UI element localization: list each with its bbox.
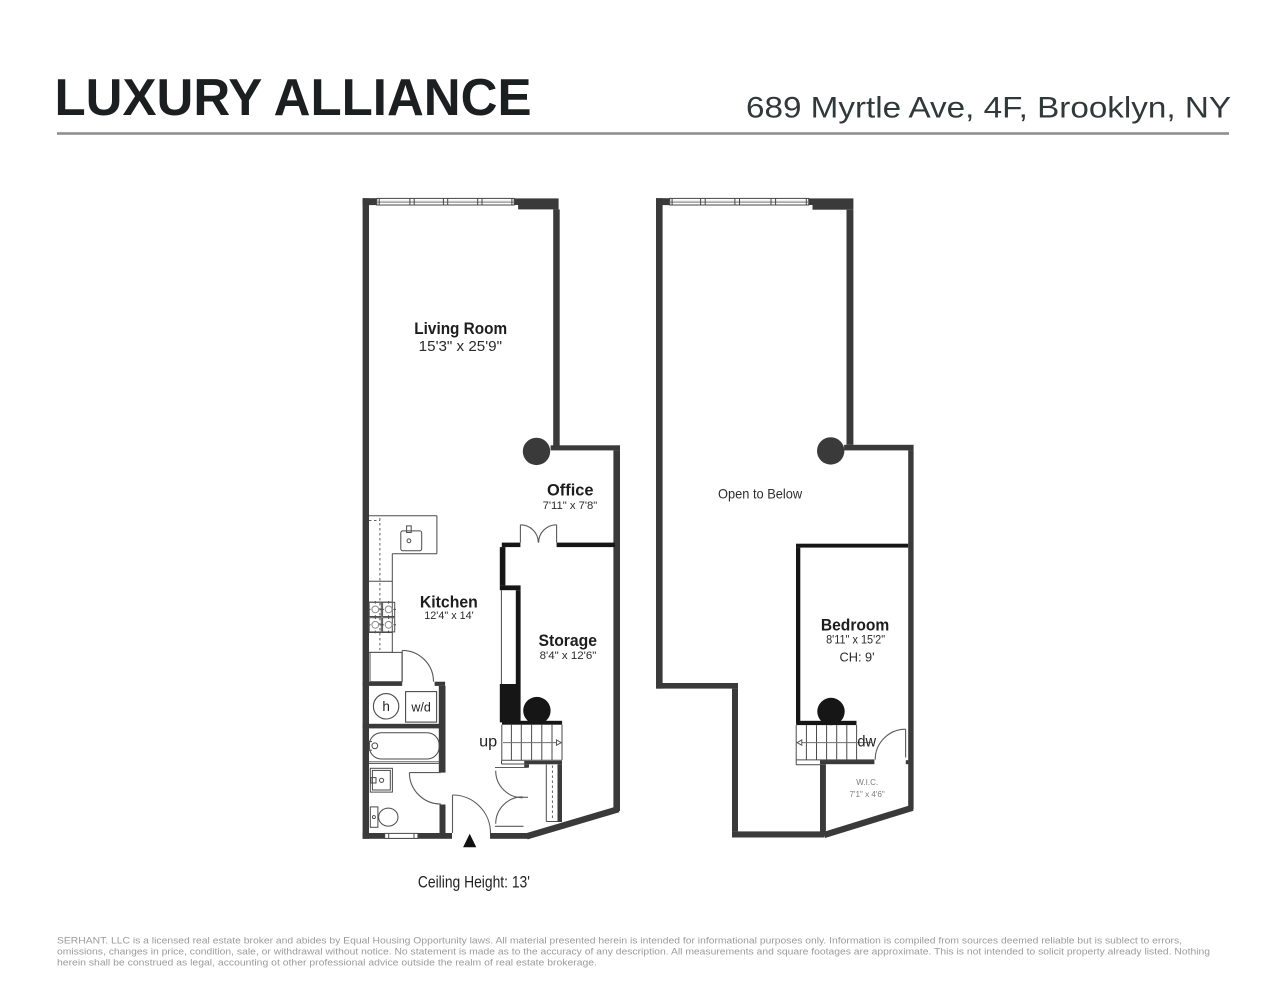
svg-text:up: up xyxy=(479,733,497,750)
svg-text:12'4" x 14': 12'4" x 14' xyxy=(424,610,473,622)
svg-text:h: h xyxy=(382,699,390,714)
svg-text:7'11" x 7'8": 7'11" x 7'8" xyxy=(543,500,598,512)
svg-text:SERHANT. LLC is a licensed rea: SERHANT. LLC is a licensed real estate b… xyxy=(57,935,1182,945)
svg-text:Open to Below: Open to Below xyxy=(718,486,803,502)
svg-text:7'1" x 4'6": 7'1" x 4'6" xyxy=(850,789,885,799)
svg-text:8'11" x 15'2": 8'11" x 15'2" xyxy=(826,633,885,647)
svg-text:herein shall be construed as l: herein shall be construed as legal, acco… xyxy=(57,957,597,967)
svg-text:Office: Office xyxy=(547,481,594,499)
svg-text:Kitchen: Kitchen xyxy=(420,594,478,612)
svg-text:LUXURY ALLIANCE: LUXURY ALLIANCE xyxy=(55,69,532,127)
svg-text:Storage: Storage xyxy=(539,632,598,650)
svg-text:Living Room: Living Room xyxy=(414,320,507,338)
svg-text:15'3" x 25'9": 15'3" x 25'9" xyxy=(419,339,502,355)
svg-text:CH: 9': CH: 9' xyxy=(840,649,875,664)
svg-text:Ceiling Height: 13': Ceiling Height: 13' xyxy=(418,873,530,892)
svg-text:w/d: w/d xyxy=(410,700,431,714)
svg-text:omissions, changes in price, c: omissions, changes in price, condition, … xyxy=(57,946,1210,956)
svg-text:689 Myrtle Ave, 4F, Brooklyn,: 689 Myrtle Ave, 4F, Brooklyn, NY xyxy=(746,91,1231,124)
svg-text:W.I.C.: W.I.C. xyxy=(856,777,878,787)
svg-text:8'4" x 12'6": 8'4" x 12'6" xyxy=(540,650,597,662)
svg-text:dw: dw xyxy=(857,733,876,750)
svg-text:Bedroom: Bedroom xyxy=(821,616,889,634)
